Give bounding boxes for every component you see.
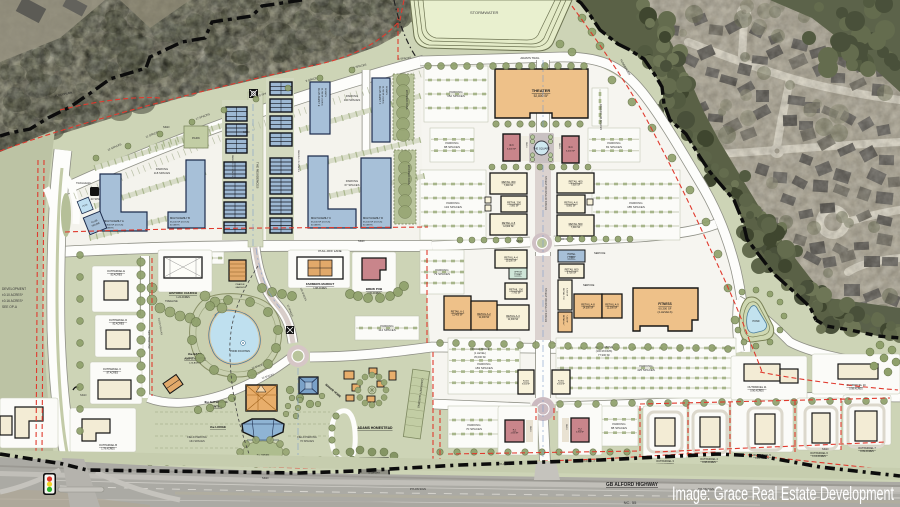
- svg-text:MULTI-FAMILY E: MULTI-FAMILY E: [317, 88, 320, 107]
- svg-text:POND: POND: [753, 320, 760, 323]
- svg-text:RETAIL 500: RETAIL 500: [569, 222, 583, 226]
- svg-text:9,000 SF: 9,000 SF: [566, 206, 576, 208]
- svg-text:WOODED PARK: WOODED PARK: [405, 90, 409, 110]
- svg-text:65,100 SF (3 LVLS): 65,100 SF (3 LVLS): [363, 221, 382, 223]
- svg-text:OFFICE ABOVE: OFFICE ABOVE: [470, 347, 489, 351]
- svg-text:FIELD PARKING: FIELD PARKING: [187, 435, 207, 439]
- svg-text:164 SPACES: 164 SPACES: [189, 439, 205, 443]
- svg-text:GARDEN: GARDEN: [235, 286, 245, 289]
- svg-text:PATIO: PATIO: [558, 143, 561, 149]
- svg-text:LOBBY: LOBBY: [568, 256, 576, 259]
- svg-text:(100 ROOMS): (100 ROOMS): [596, 349, 613, 353]
- svg-text:6,300 SF: 6,300 SF: [565, 288, 567, 297]
- svg-text:THE SQUARE: THE SQUARE: [533, 146, 550, 150]
- svg-text:0.98 ACRES: 0.98 ACRES: [849, 388, 863, 391]
- svg-text:SIGN: SIGN: [358, 239, 364, 243]
- svg-text:Image: Grace Real Estate Devel: Image: Grace Real Estate Development: [672, 484, 894, 505]
- svg-text:67 SPACES: 67 SPACES: [344, 183, 359, 187]
- svg-text:14,300 SF: 14,300 SF: [583, 308, 594, 310]
- svg-text:TREELINE: TREELINE: [165, 299, 178, 303]
- svg-text:MULTI-FAMILY C: MULTI-FAMILY C: [311, 216, 331, 220]
- svg-text:7,700 SF: 7,700 SF: [511, 293, 521, 295]
- svg-text:RETAIL 300: RETAIL 300: [502, 180, 516, 184]
- svg-text:RETAIL 200: RETAIL 200: [507, 200, 521, 204]
- svg-text:8,000 SF: 8,000 SF: [522, 384, 531, 386]
- svg-text:PARKING 36 SPACES: PARKING 36 SPACES: [599, 104, 603, 130]
- svg-text:PARKING 40 SPACES: PARKING 40 SPACES: [231, 155, 234, 178]
- svg-text:STORMWATER: STORMWATER: [470, 10, 498, 15]
- svg-text:0.90 ACRES: 0.90 ACRES: [750, 390, 764, 393]
- svg-text:RETAIL A-9: RETAIL A-9: [605, 302, 619, 306]
- svg-text:88 SPACES: 88 SPACES: [611, 426, 627, 430]
- svg-text:RETAIL A-6: RETAIL A-6: [564, 200, 578, 204]
- svg-text:11,400 SF: 11,400 SF: [479, 317, 490, 319]
- svg-text:LOBBY: LOBBY: [514, 275, 522, 277]
- svg-text:PARK: PARK: [192, 136, 200, 140]
- svg-text:STREET PARKING 30 SPACES: STREET PARKING 30 SPACES: [544, 176, 547, 211]
- svg-text:±0.10 ACRES*: ±0.10 ACRES*: [2, 293, 24, 297]
- svg-text:11,200 SF: 11,200 SF: [607, 308, 618, 310]
- svg-text:NC- 55: NC- 55: [624, 500, 637, 505]
- svg-text:SIGN: SIGN: [516, 239, 522, 243]
- svg-text:GB ALFORD HIGHWAY: GB ALFORD HIGHWAY: [606, 482, 659, 488]
- svg-text:.97 ACRES: .97 ACRES: [106, 372, 118, 375]
- svg-text:RETAIL 600: RETAIL 600: [565, 267, 579, 271]
- svg-text:SIGN: SIGN: [243, 130, 249, 134]
- svg-text:RETAIL 100: RETAIL 100: [509, 287, 523, 291]
- svg-text:24,750 SF (3 LVLS): 24,750 SF (3 LVLS): [321, 88, 323, 106]
- svg-text:FITNESS: FITNESS: [658, 302, 671, 306]
- svg-text:425 SPACES: 425 SPACES: [637, 368, 655, 372]
- svg-text:1.78 ACRES: 1.78 ACRES: [101, 448, 115, 451]
- svg-text:SERVICE: SERVICE: [583, 283, 595, 287]
- svg-text:11,400 SF: 11,400 SF: [452, 315, 463, 317]
- svg-text:134 SPACES: 134 SPACES: [444, 205, 462, 209]
- svg-text:5,700 SF: 5,700 SF: [567, 273, 577, 275]
- svg-text:PATIO: PATIO: [565, 424, 568, 430]
- svg-text:RETAIL A-8: RETAIL A-8: [581, 302, 595, 306]
- svg-text:77,900 SF: 77,900 SF: [598, 353, 610, 357]
- svg-text:±0.16 ACRES*: ±0.16 ACRES*: [2, 299, 24, 303]
- svg-text:DEVELOPMENT: DEVELOPMENT: [2, 287, 26, 291]
- svg-text:185 SPACES: 185 SPACES: [627, 205, 645, 209]
- svg-text:R-600: R-600: [523, 380, 530, 382]
- svg-text:6,400 SF: 6,400 SF: [507, 148, 517, 150]
- svg-text:OUTPARCEL B: OUTPARCEL B: [99, 443, 117, 447]
- svg-text:OFFICE: OFFICE: [514, 272, 523, 274]
- svg-text:RETAIL A-2: RETAIL A-2: [477, 312, 491, 316]
- svg-text:PRAYER: PRAYER: [236, 283, 245, 286]
- svg-text:88 SPACES: 88 SPACES: [444, 145, 460, 149]
- svg-text:FIELD PARKING: FIELD PARKING: [297, 435, 317, 439]
- svg-text:RETAIL A-7: RETAIL A-7: [562, 315, 565, 326]
- svg-text:ADAM'S TRAIL: ADAM'S TRAIL: [520, 56, 540, 60]
- svg-text:OUTPARCEL E: OUTPARCEL E: [107, 269, 125, 273]
- svg-text:60 UNITS: 60 UNITS: [170, 225, 180, 227]
- svg-text:8,000 SF: 8,000 SF: [557, 384, 566, 386]
- svg-text:SIGN: SIGN: [80, 393, 86, 397]
- svg-text:152 SPACES: 152 SPACES: [447, 94, 465, 98]
- svg-text:RETAIL A-3: RETAIL A-3: [506, 314, 520, 318]
- svg-text:RETAIL 400: RETAIL 400: [569, 179, 583, 183]
- svg-text:118 SPACES: 118 SPACES: [154, 171, 171, 175]
- svg-text:4,900 SF: 4,900 SF: [576, 432, 585, 434]
- svg-text:POND FOUNTAIN: POND FOUNTAIN: [230, 350, 250, 353]
- svg-text:PARKING 35 SPACES: PARKING 35 SPACES: [297, 150, 300, 173]
- svg-text:7,600 SF: 7,600 SF: [571, 185, 581, 187]
- svg-text:1.88 ACRES: 1.88 ACRES: [313, 287, 327, 290]
- svg-text:SIGN: SIGN: [262, 476, 268, 480]
- svg-text:12,600 SF: 12,600 SF: [503, 226, 514, 228]
- svg-text:TRAILHEAD: TRAILHEAD: [76, 181, 91, 185]
- svg-text:THE RESIDENCES: THE RESIDENCES: [256, 162, 260, 188]
- svg-text:SIGN: SIGN: [163, 125, 169, 129]
- svg-text:RETAIL A-5: RETAIL A-5: [502, 221, 516, 225]
- svg-text:MULTI-FAMILY D: MULTI-FAMILY D: [363, 216, 383, 220]
- svg-text:RETAIL A-1: RETAIL A-1: [451, 309, 465, 313]
- svg-text:28 UNITS: 28 UNITS: [385, 86, 387, 95]
- svg-text:the LODGE: the LODGE: [210, 425, 226, 429]
- svg-text:NEW TREE LINE: NEW TREE LINE: [147, 330, 150, 349]
- svg-text:52,800 SF: 52,800 SF: [534, 94, 549, 98]
- svg-text:1.22 ACRES: 1.22 ACRES: [176, 296, 190, 299]
- svg-text:183 SPACES: 183 SPACES: [475, 366, 493, 370]
- svg-text:60 UNITS: 60 UNITS: [311, 225, 321, 227]
- svg-text:PATIO: PATIO: [525, 142, 528, 148]
- svg-text:10,200 SF: 10,200 SF: [506, 261, 517, 263]
- svg-text:MULTI-FAMILY A: MULTI-FAMILY A: [104, 219, 124, 223]
- svg-text:OUTPARCEL 11: OUTPARCEL 11: [748, 385, 768, 389]
- svg-text:MULTI-FAMILY F: MULTI-FAMILY F: [378, 86, 381, 105]
- svg-text:PYLON SIGN: PYLON SIGN: [498, 462, 514, 466]
- svg-text:.92 ACRES: .92 ACRES: [112, 323, 124, 326]
- svg-text:R-4: R-4: [569, 146, 574, 149]
- svg-text:ADAMS HOMESTEAD: ADAMS HOMESTEAD: [357, 426, 393, 430]
- svg-text:PYLON SIGN: PYLON SIGN: [410, 487, 426, 491]
- svg-text:57,800 SF (3 LVLS): 57,800 SF (3 LVLS): [104, 224, 123, 226]
- svg-text:60 UNITS: 60 UNITS: [363, 225, 373, 227]
- svg-text:FARMERS MARKET: FARMERS MARKET: [306, 282, 335, 286]
- svg-text:7,000 SF: 7,000 SF: [509, 206, 519, 208]
- svg-text:81 SPACES: 81 SPACES: [606, 145, 622, 149]
- svg-text:11,300 SF: 11,300 SF: [508, 319, 519, 321]
- svg-text:RETAIL 700: RETAIL 700: [562, 288, 565, 300]
- svg-text:100 SPACES: 100 SPACES: [344, 98, 361, 102]
- svg-text:R-3: R-3: [510, 144, 515, 147]
- svg-text:SEE OP-A: SEE OP-A: [2, 305, 18, 309]
- svg-text:7,200 SF: 7,200 SF: [565, 315, 567, 324]
- svg-text:0.99 ACRES: 0.99 ACRES: [860, 450, 874, 453]
- svg-text:(1 LEVEL): (1 LEVEL): [474, 351, 486, 355]
- svg-text:WOODED PARK: WOODED PARK: [407, 165, 411, 185]
- svg-text:PULL-OFF LANE: PULL-OFF LANE: [318, 249, 341, 253]
- svg-text:OUTPARCEL C: OUTPARCEL C: [103, 367, 121, 371]
- svg-text:114 SPACES: 114 SPACES: [378, 328, 396, 332]
- svg-text:MULTI-FAMILY B: MULTI-FAMILY B: [170, 216, 190, 220]
- svg-text:0.98 ACRES: 0.98 ACRES: [702, 461, 716, 464]
- svg-text:STREET PARKING 47 SPACES: STREET PARKING 47 SPACES: [544, 288, 547, 323]
- svg-text:R-900: R-900: [558, 380, 565, 382]
- svg-text:1.14 ACRES: 1.14 ACRES: [812, 455, 826, 458]
- svg-text:(2-LEVELS): (2-LEVELS): [658, 310, 673, 314]
- svg-text:.93 ACRES: .93 ACRES: [110, 274, 122, 277]
- svg-text:28 UNITS: 28 UNITS: [324, 88, 326, 97]
- svg-text:SERVICE: SERVICE: [594, 251, 606, 255]
- svg-text:65,100 SF (3 LVLS): 65,100 SF (3 LVLS): [311, 221, 330, 223]
- svg-text:7,600 SF: 7,600 SF: [504, 185, 514, 187]
- svg-text:70 SPACES: 70 SPACES: [466, 427, 482, 431]
- svg-text:7,600 SF: 7,600 SF: [571, 227, 581, 229]
- svg-text:RETAIL A-4: RETAIL A-4: [504, 255, 518, 259]
- svg-text:79 SPACES: 79 SPACES: [434, 272, 450, 276]
- svg-text:PATIO: PATIO: [529, 426, 532, 432]
- svg-text:HISTORIC CHURCH: HISTORIC CHURCH: [169, 291, 197, 295]
- svg-text:65,100 SF (3 LVLS): 65,100 SF (3 LVLS): [170, 221, 189, 223]
- svg-text:76 SPACES: 76 SPACES: [300, 439, 314, 443]
- svg-text:24,750 SF (3 LVLS): 24,750 SF (3 LVLS): [382, 86, 384, 104]
- svg-text:BREW PUB: BREW PUB: [366, 287, 383, 291]
- svg-text:35,000 SF: 35,000 SF: [474, 355, 486, 359]
- svg-text:4,900 SF: 4,900 SF: [511, 433, 520, 435]
- svg-text:6,400 SF: 6,400 SF: [566, 150, 576, 152]
- svg-text:OUTPARCEL D: OUTPARCEL D: [109, 318, 127, 322]
- svg-text:SIGN: SIGN: [822, 447, 828, 451]
- svg-text:THEATER: THEATER: [532, 88, 551, 93]
